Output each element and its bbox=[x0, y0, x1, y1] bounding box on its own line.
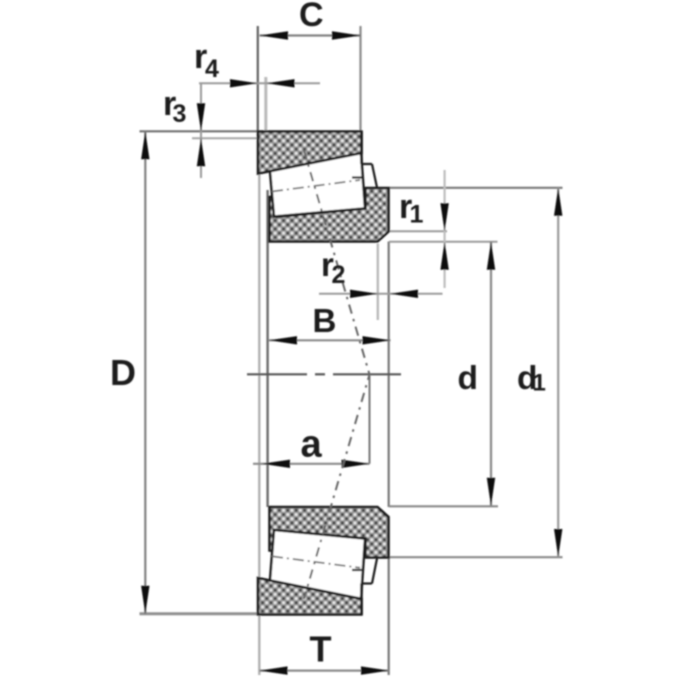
svg-text:D: D bbox=[110, 352, 136, 393]
svg-text:4: 4 bbox=[205, 55, 219, 83]
svg-text:a: a bbox=[301, 424, 323, 466]
svg-text:C: C bbox=[299, 0, 324, 34]
svg-text:1: 1 bbox=[533, 370, 546, 397]
svg-text:3: 3 bbox=[173, 100, 187, 128]
svg-text:2: 2 bbox=[332, 261, 346, 289]
svg-text:1: 1 bbox=[410, 201, 424, 229]
svg-text:d: d bbox=[458, 360, 478, 397]
svg-text:B: B bbox=[313, 302, 337, 339]
svg-text:T: T bbox=[310, 629, 332, 670]
